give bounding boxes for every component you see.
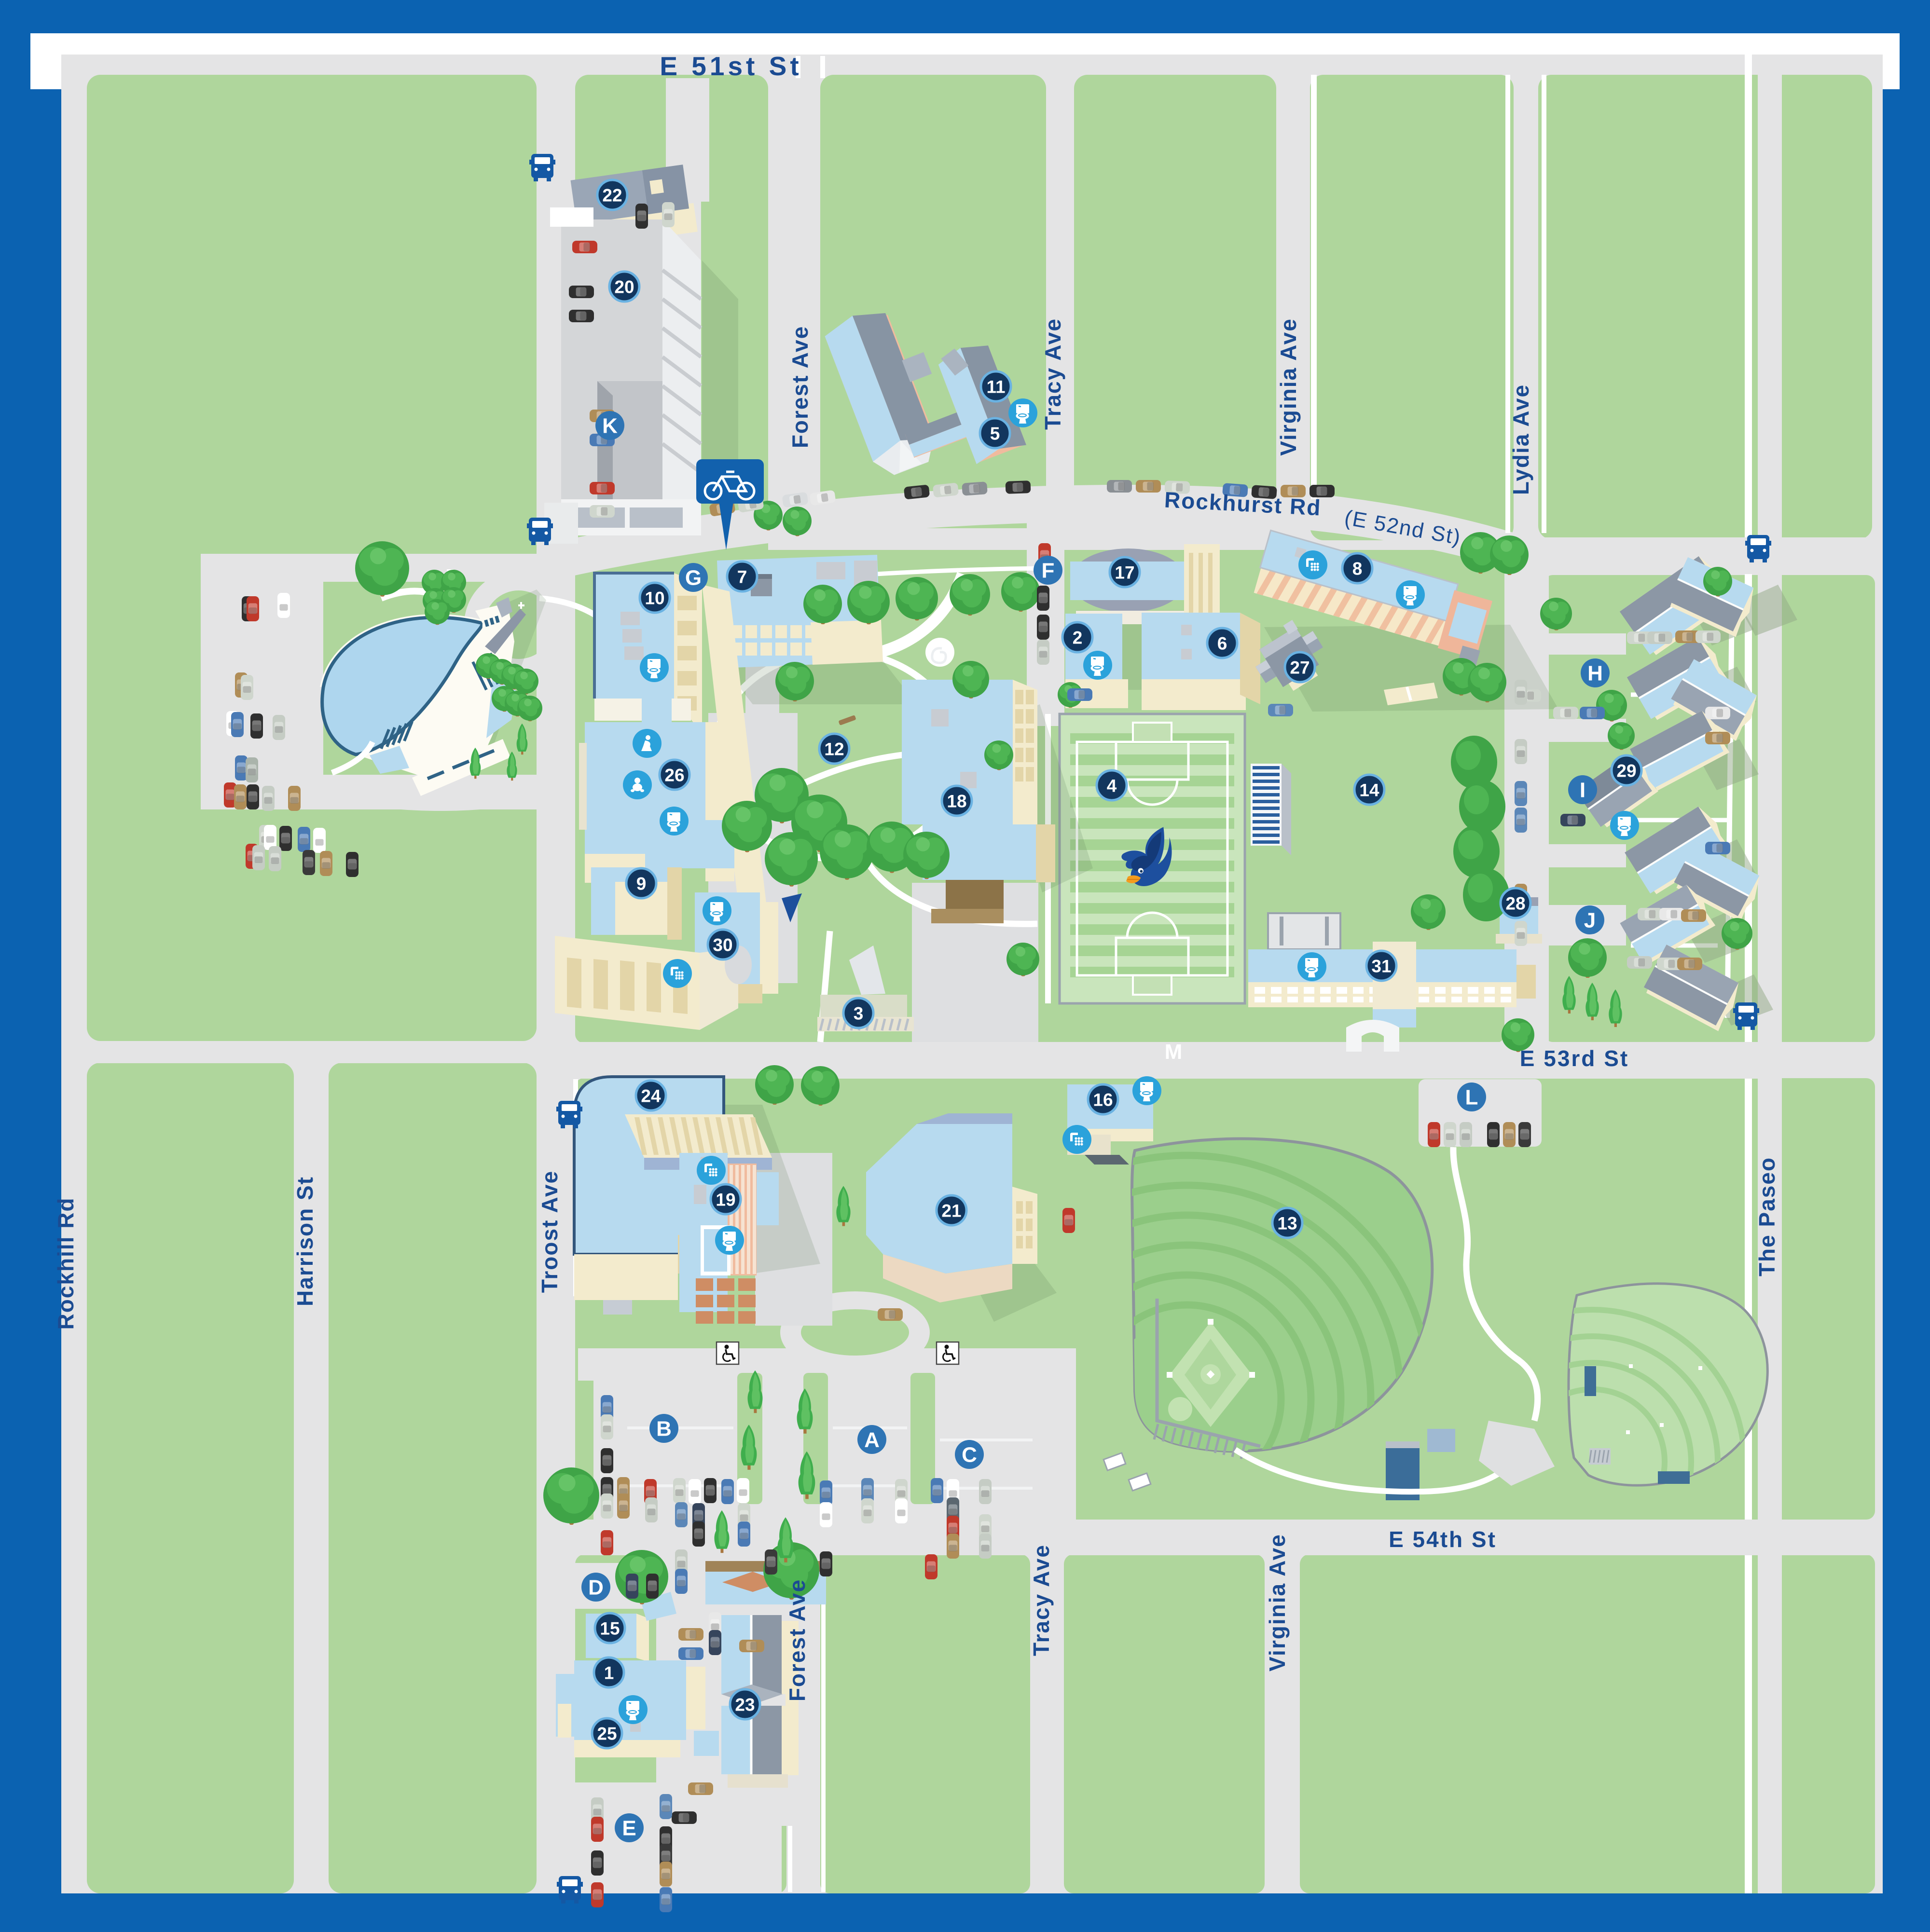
svg-text:E 53rd St: E 53rd St <box>1520 1046 1629 1071</box>
svg-text:Tracy Ave: Tracy Ave <box>1040 318 1065 430</box>
svg-text:4: 4 <box>1107 776 1117 795</box>
svg-text:1: 1 <box>604 1663 614 1683</box>
svg-text:I: I <box>1580 778 1585 802</box>
svg-text:8: 8 <box>1352 559 1363 578</box>
svg-text:16: 16 <box>1093 1090 1113 1110</box>
svg-text:Rockhill Rd: Rockhill Rd <box>53 1197 78 1329</box>
svg-text:28: 28 <box>1505 893 1525 913</box>
svg-text:H: H <box>1587 661 1603 685</box>
svg-text:18: 18 <box>947 791 966 811</box>
svg-text:D: D <box>588 1576 604 1599</box>
svg-text:2: 2 <box>1073 628 1083 647</box>
svg-text:25: 25 <box>597 1724 617 1743</box>
svg-text:Virginia Ave: Virginia Ave <box>1265 1534 1290 1672</box>
svg-text:Harrison St: Harrison St <box>292 1176 317 1306</box>
svg-text:Virginia Ave: Virginia Ave <box>1276 318 1301 456</box>
svg-text:6: 6 <box>1217 633 1227 653</box>
svg-text:27: 27 <box>1290 658 1310 677</box>
svg-text:31: 31 <box>1371 956 1391 976</box>
svg-text:C: C <box>962 1443 977 1466</box>
svg-text:11: 11 <box>986 377 1005 397</box>
svg-text:L: L <box>1465 1085 1478 1109</box>
svg-text:B: B <box>656 1417 672 1440</box>
svg-text:E: E <box>622 1816 636 1840</box>
svg-text:17: 17 <box>1115 562 1134 582</box>
svg-text:9: 9 <box>636 874 647 893</box>
svg-text:7: 7 <box>737 567 747 587</box>
svg-text:F: F <box>1042 559 1055 582</box>
svg-text:22: 22 <box>602 185 622 205</box>
svg-text:10: 10 <box>645 588 664 608</box>
svg-text:19: 19 <box>716 1190 735 1209</box>
svg-text:M: M <box>1165 1040 1183 1064</box>
svg-text:14: 14 <box>1359 780 1379 800</box>
svg-text:5: 5 <box>990 424 1000 443</box>
svg-text:E 54th St: E 54th St <box>1389 1527 1497 1552</box>
svg-text:Forest Ave: Forest Ave <box>787 326 813 448</box>
svg-text:The Paseo: The Paseo <box>1754 1157 1779 1276</box>
svg-text:Lydia Ave: Lydia Ave <box>1508 384 1533 495</box>
svg-text:21: 21 <box>941 1201 961 1220</box>
svg-text:29: 29 <box>1616 761 1636 781</box>
svg-text:15: 15 <box>600 1618 620 1638</box>
svg-text:26: 26 <box>664 765 684 785</box>
svg-text:Forest Ave: Forest Ave <box>785 1579 810 1701</box>
svg-text:Troost Ave: Troost Ave <box>537 1170 562 1293</box>
svg-text:23: 23 <box>735 1695 755 1714</box>
svg-text:Tracy Ave: Tracy Ave <box>1029 1544 1054 1656</box>
svg-text:24: 24 <box>641 1086 661 1106</box>
svg-text:K: K <box>602 414 618 438</box>
svg-text:12: 12 <box>824 739 844 759</box>
svg-text:E 51st St: E 51st St <box>660 51 802 81</box>
svg-text:13: 13 <box>1277 1213 1297 1233</box>
svg-text:A: A <box>864 1428 880 1452</box>
svg-text:30: 30 <box>713 935 732 955</box>
svg-text:3: 3 <box>854 1003 864 1023</box>
svg-text:G: G <box>685 566 702 589</box>
svg-text:20: 20 <box>614 277 634 297</box>
svg-text:J: J <box>1584 908 1596 932</box>
